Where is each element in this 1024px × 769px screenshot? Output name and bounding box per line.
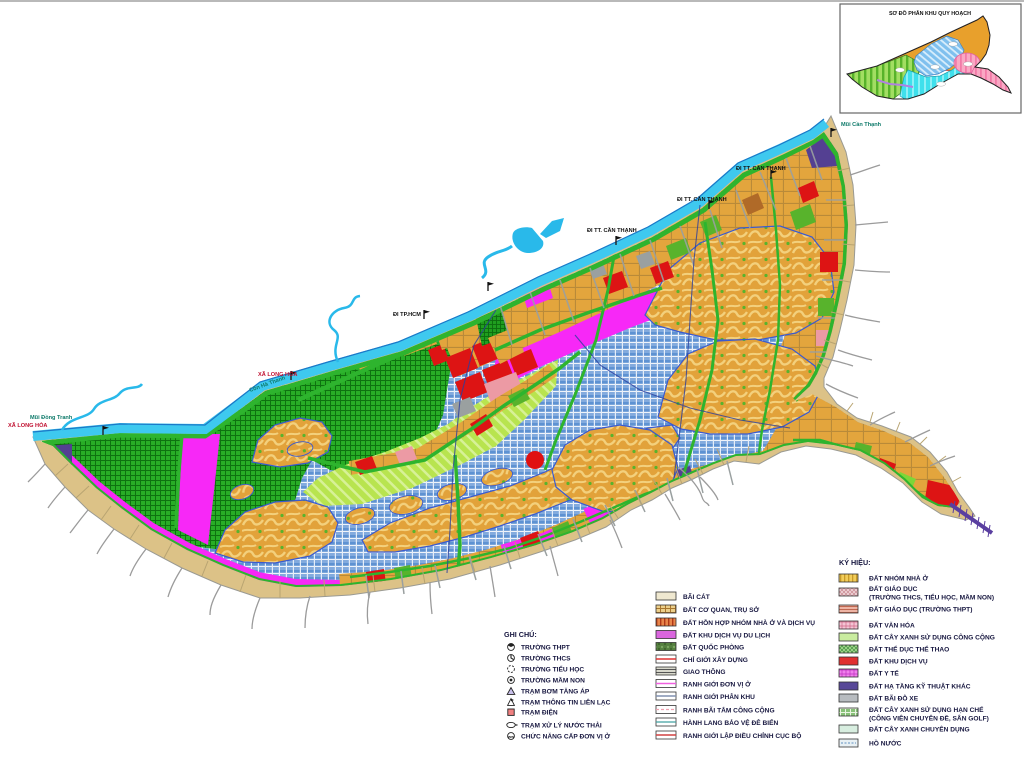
svg-text:GHI CHÚ:: GHI CHÚ:	[504, 630, 537, 639]
svg-text:BÃI CÁT: BÃI CÁT	[683, 592, 710, 601]
svg-text:ĐẤT KHU DỊCH VỤ: ĐẤT KHU DỊCH VỤ	[869, 656, 928, 666]
svg-text:(CÔNG VIÊN CHUYÊN ĐỀ, SÂN GOLF: (CÔNG VIÊN CHUYÊN ĐỀ, SÂN GOLF)	[869, 713, 989, 723]
svg-text:ĐI TT. CẦN THẠNH: ĐI TT. CẦN THẠNH	[587, 227, 637, 234]
svg-text:ĐẤT THỂ DỤC THỂ THAO: ĐẤT THỂ DỤC THỂ THAO	[869, 644, 949, 654]
svg-text:ĐẤT HỖN HỢP NHÓM NHÀ Ở VÀ DỊCH: ĐẤT HỖN HỢP NHÓM NHÀ Ở VÀ DỊCH VỤ	[683, 617, 815, 627]
svg-text:TRƯỜNG THCS: TRƯỜNG THCS	[521, 654, 571, 663]
svg-text:TRẠM XỬ LÝ NƯỚC THẢI: TRẠM XỬ LÝ NƯỚC THẢI	[521, 721, 602, 730]
svg-text:ww: ww	[507, 734, 515, 739]
svg-text:ĐẤT GIÁO DỤC: ĐẤT GIÁO DỤC	[869, 583, 918, 593]
svg-text:XÃ LONG HÒA: XÃ LONG HÒA	[8, 421, 47, 429]
svg-text:ĐI TT. CẦN THẠNH: ĐI TT. CẦN THẠNH	[677, 196, 727, 203]
svg-text:TRẠM ĐIỆN: TRẠM ĐIỆN	[521, 708, 558, 717]
svg-text:ĐI TP.HCM: ĐI TP.HCM	[393, 312, 421, 318]
svg-text:RANH GIỚI LẬP ĐIỀU CHỈNH CỤC B: RANH GIỚI LẬP ĐIỀU CHỈNH CỤC BỘ	[683, 730, 801, 740]
svg-text:(TRƯỜNG THCS, TIỂU HỌC, MẦM NO: (TRƯỜNG THCS, TIỂU HỌC, MẦM NON)	[869, 592, 994, 602]
svg-text:ĐẤT CÂY XANH SỬ DỤNG HẠN CHẾ: ĐẤT CÂY XANH SỬ DỤNG HẠN CHẾ	[869, 704, 984, 714]
svg-text:RANH GIỚI PHÂN KHU: RANH GIỚI PHÂN KHU	[683, 692, 755, 701]
svg-text:ĐẤT GIÁO DỤC (TRƯỜNG THPT): ĐẤT GIÁO DỤC (TRƯỜNG THPT)	[869, 604, 972, 614]
svg-text:ĐẤT CƠ QUAN, TRỤ SỞ: ĐẤT CƠ QUAN, TRỤ SỞ	[683, 604, 759, 614]
svg-text:CHỨC NĂNG CẤP ĐƠN VỊ Ở: CHỨC NĂNG CẤP ĐƠN VỊ Ở	[521, 731, 611, 741]
svg-text:TRẠM THÔNG TIN LIÊN LẠC: TRẠM THÔNG TIN LIÊN LẠC	[521, 698, 611, 707]
svg-text:RANH GIỚI ĐƠN VỊ Ở: RANH GIỚI ĐƠN VỊ Ở	[683, 680, 751, 689]
svg-text:CHỈ GIỚI XÂY DỰNG: CHỈ GIỚI XÂY DỰNG	[683, 655, 748, 664]
svg-text:ĐẤT CÂY XANH CHUYÊN DỤNG: ĐẤT CÂY XANH CHUYÊN DỤNG	[869, 724, 970, 734]
svg-text:TRƯỜNG THPT: TRƯỜNG THPT	[521, 643, 570, 652]
svg-text:SƠ ĐỒ PHÂN KHU QUY HOẠCH: SƠ ĐỒ PHÂN KHU QUY HOẠCH	[889, 10, 971, 17]
svg-text:TRƯỜNG MẦM NON: TRƯỜNG MẦM NON	[521, 675, 585, 685]
svg-text:ĐẤT QUỐC PHÒNG: ĐẤT QUỐC PHÒNG	[683, 642, 744, 652]
svg-text:ĐẤT BÃI ĐỖ XE: ĐẤT BÃI ĐỖ XE	[869, 693, 919, 703]
svg-text:TRƯỜNG TIỂU HỌC: TRƯỜNG TIỂU HỌC	[521, 665, 584, 674]
svg-text:RANH BÃI TẮM CÔNG CỘNG: RANH BÃI TẮM CÔNG CỘNG	[683, 706, 775, 715]
svg-text:Mũi Cần Thạnh: Mũi Cần Thạnh	[841, 122, 882, 128]
svg-text:ĐI TT. CẦN THẠNH: ĐI TT. CẦN THẠNH	[736, 165, 786, 172]
svg-text:ĐẤT NHÓM NHÀ Ở: ĐẤT NHÓM NHÀ Ở	[869, 573, 928, 583]
svg-text:HÀNH LANG BẢO VỆ ĐÊ BIỂN: HÀNH LANG BẢO VỆ ĐÊ BIỂN	[683, 718, 778, 727]
svg-text:ĐẤT VĂN HÓA: ĐẤT VĂN HÓA	[869, 620, 915, 630]
svg-text:TRẠM BƠM TĂNG ÁP: TRẠM BƠM TĂNG ÁP	[521, 687, 590, 696]
svg-text:HỒ NƯỚC: HỒ NƯỚC	[869, 738, 902, 748]
svg-text:ĐẤT CÂY XANH SỬ DỤNG CÔNG CỘNG: ĐẤT CÂY XANH SỬ DỤNG CÔNG CỘNG	[869, 632, 995, 642]
svg-text:KÝ HIỆU:: KÝ HIỆU:	[839, 558, 871, 567]
svg-text:ĐẤT Y TẾ: ĐẤT Y TẾ	[869, 668, 899, 678]
svg-text:GIAO THÔNG: GIAO THÔNG	[683, 667, 726, 676]
svg-text:Mũi Đồng Tranh: Mũi Đồng Tranh	[30, 415, 73, 421]
svg-text:ĐẤT KHU DỊCH VỤ DU LỊCH: ĐẤT KHU DỊCH VỤ DU LỊCH	[683, 630, 770, 640]
svg-text:ĐẤT HẠ TẦNG KỸ THUẬT KHÁC: ĐẤT HẠ TẦNG KỸ THUẬT KHÁC	[869, 681, 971, 691]
